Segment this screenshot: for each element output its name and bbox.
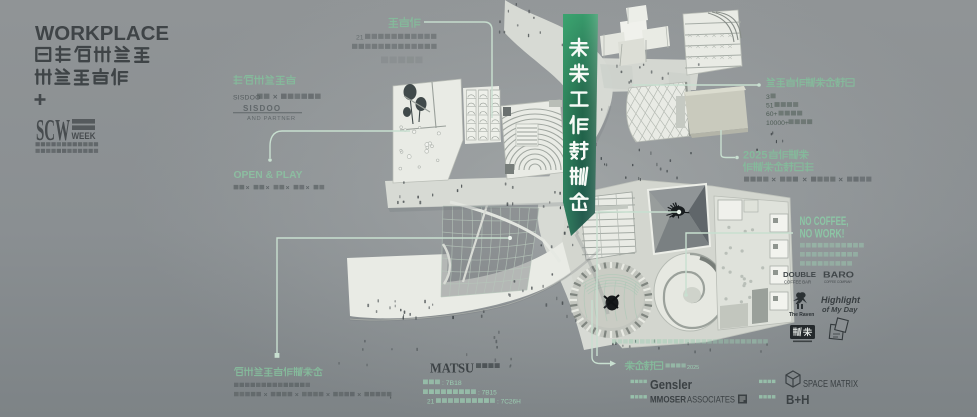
svg-text:: 7B15: : 7B15	[478, 390, 497, 397]
svg-text:51: 51	[766, 103, 774, 110]
svg-text:BARO: BARO	[823, 271, 854, 280]
svg-text:DOUBLE: DOUBLE	[783, 270, 816, 279]
svg-text:Highlight: Highlight	[821, 295, 861, 305]
svg-text:21: 21	[427, 398, 435, 405]
svg-text:MMOSER: MMOSER	[650, 395, 686, 406]
svg-text:The Raven: The Raven	[789, 312, 814, 318]
svg-text:3: 3	[766, 94, 770, 101]
svg-text:of My Day: of My Day	[822, 305, 858, 314]
svg-text:WEEK: WEEK	[72, 131, 96, 141]
svg-text:: 7B18: : 7B18	[442, 380, 462, 387]
svg-text:NO WORK!: NO WORK!	[800, 227, 845, 241]
svg-text:SISDOO: SISDOO	[243, 104, 281, 113]
svg-text:AND PARTNER: AND PARTNER	[247, 116, 296, 122]
svg-text:: 7C26H: : 7C26H	[497, 398, 521, 405]
svg-text:2025: 2025	[687, 365, 699, 371]
svg-text:SPACE MATRIX: SPACE MATRIX	[803, 379, 858, 390]
svg-text:Gensler: Gensler	[650, 377, 692, 392]
svg-text:2025: 2025	[743, 150, 767, 162]
svg-text:OPEN & PLAY: OPEN & PLAY	[234, 169, 303, 181]
svg-text:10000+: 10000+	[766, 120, 789, 127]
svg-text:MATSU: MATSU	[430, 361, 474, 376]
svg-text:B+H: B+H	[786, 393, 810, 407]
svg-text:ASSOCIATES: ASSOCIATES	[687, 395, 735, 406]
svg-text:21: 21	[356, 34, 364, 41]
svg-text:WORKPLACE: WORKPLACE	[35, 23, 169, 45]
svg-text:COFFEE COMPANY: COFFEE COMPANY	[824, 280, 852, 284]
svg-text:SCW: SCW	[36, 112, 70, 147]
svg-text:60+: 60+	[766, 111, 778, 118]
svg-text:SISDOO: SISDOO	[233, 95, 261, 102]
svg-text:COFFEE BAR: COFFEE BAR	[784, 280, 811, 285]
